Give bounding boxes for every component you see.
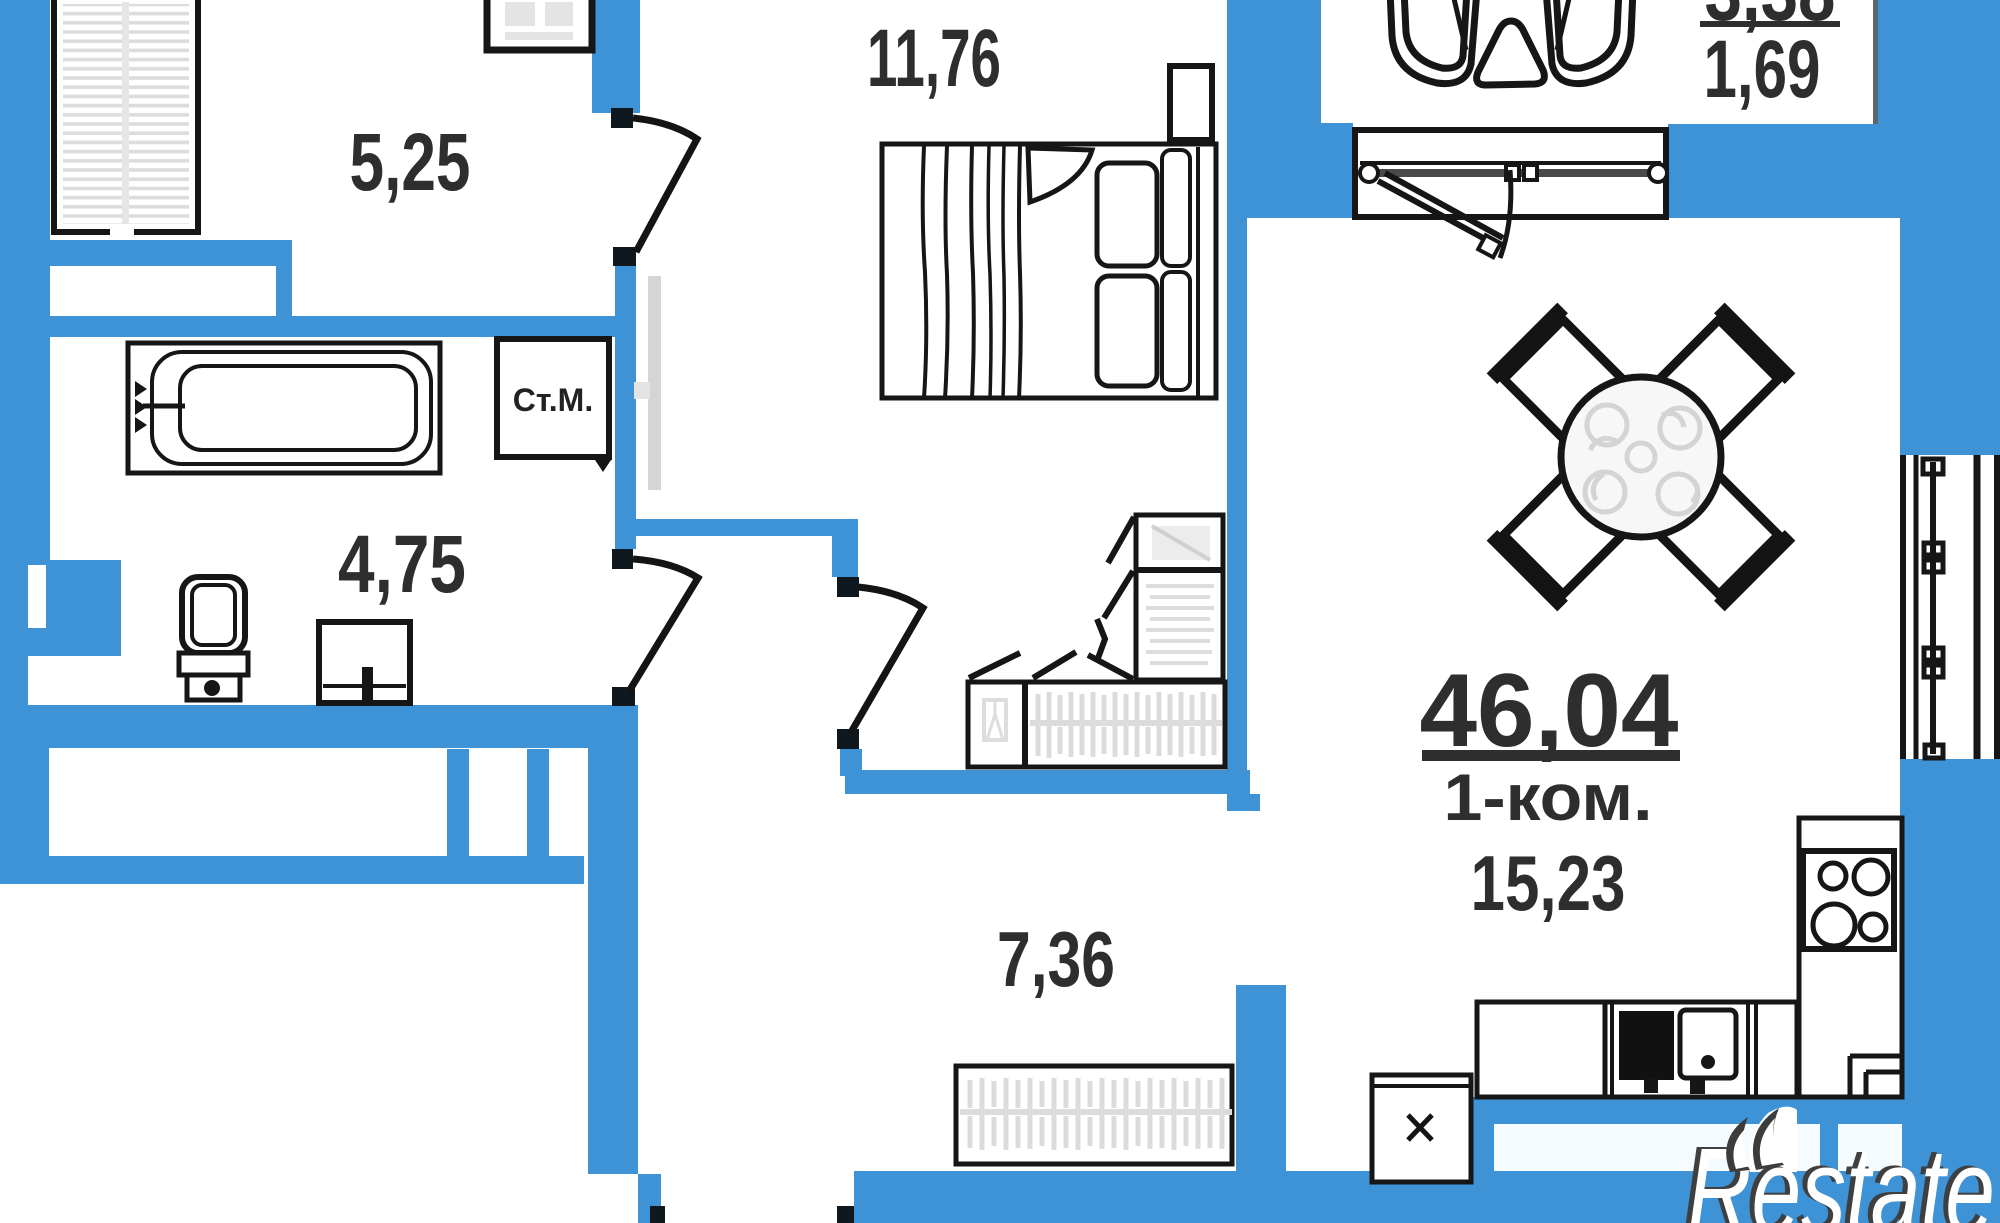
svg-text:15,23: 15,23 [1471, 839, 1626, 927]
svg-text:7,36: 7,36 [997, 915, 1115, 1003]
svg-text:1,69: 1,69 [1704, 24, 1821, 115]
svg-text:5,25: 5,25 [350, 117, 471, 208]
svg-text:Ст.М.: Ст.М. [513, 382, 593, 418]
svg-text:1-ком.: 1-ком. [1444, 760, 1653, 834]
svg-text:11,76: 11,76 [867, 13, 1001, 104]
svg-text:4,75: 4,75 [338, 519, 466, 610]
